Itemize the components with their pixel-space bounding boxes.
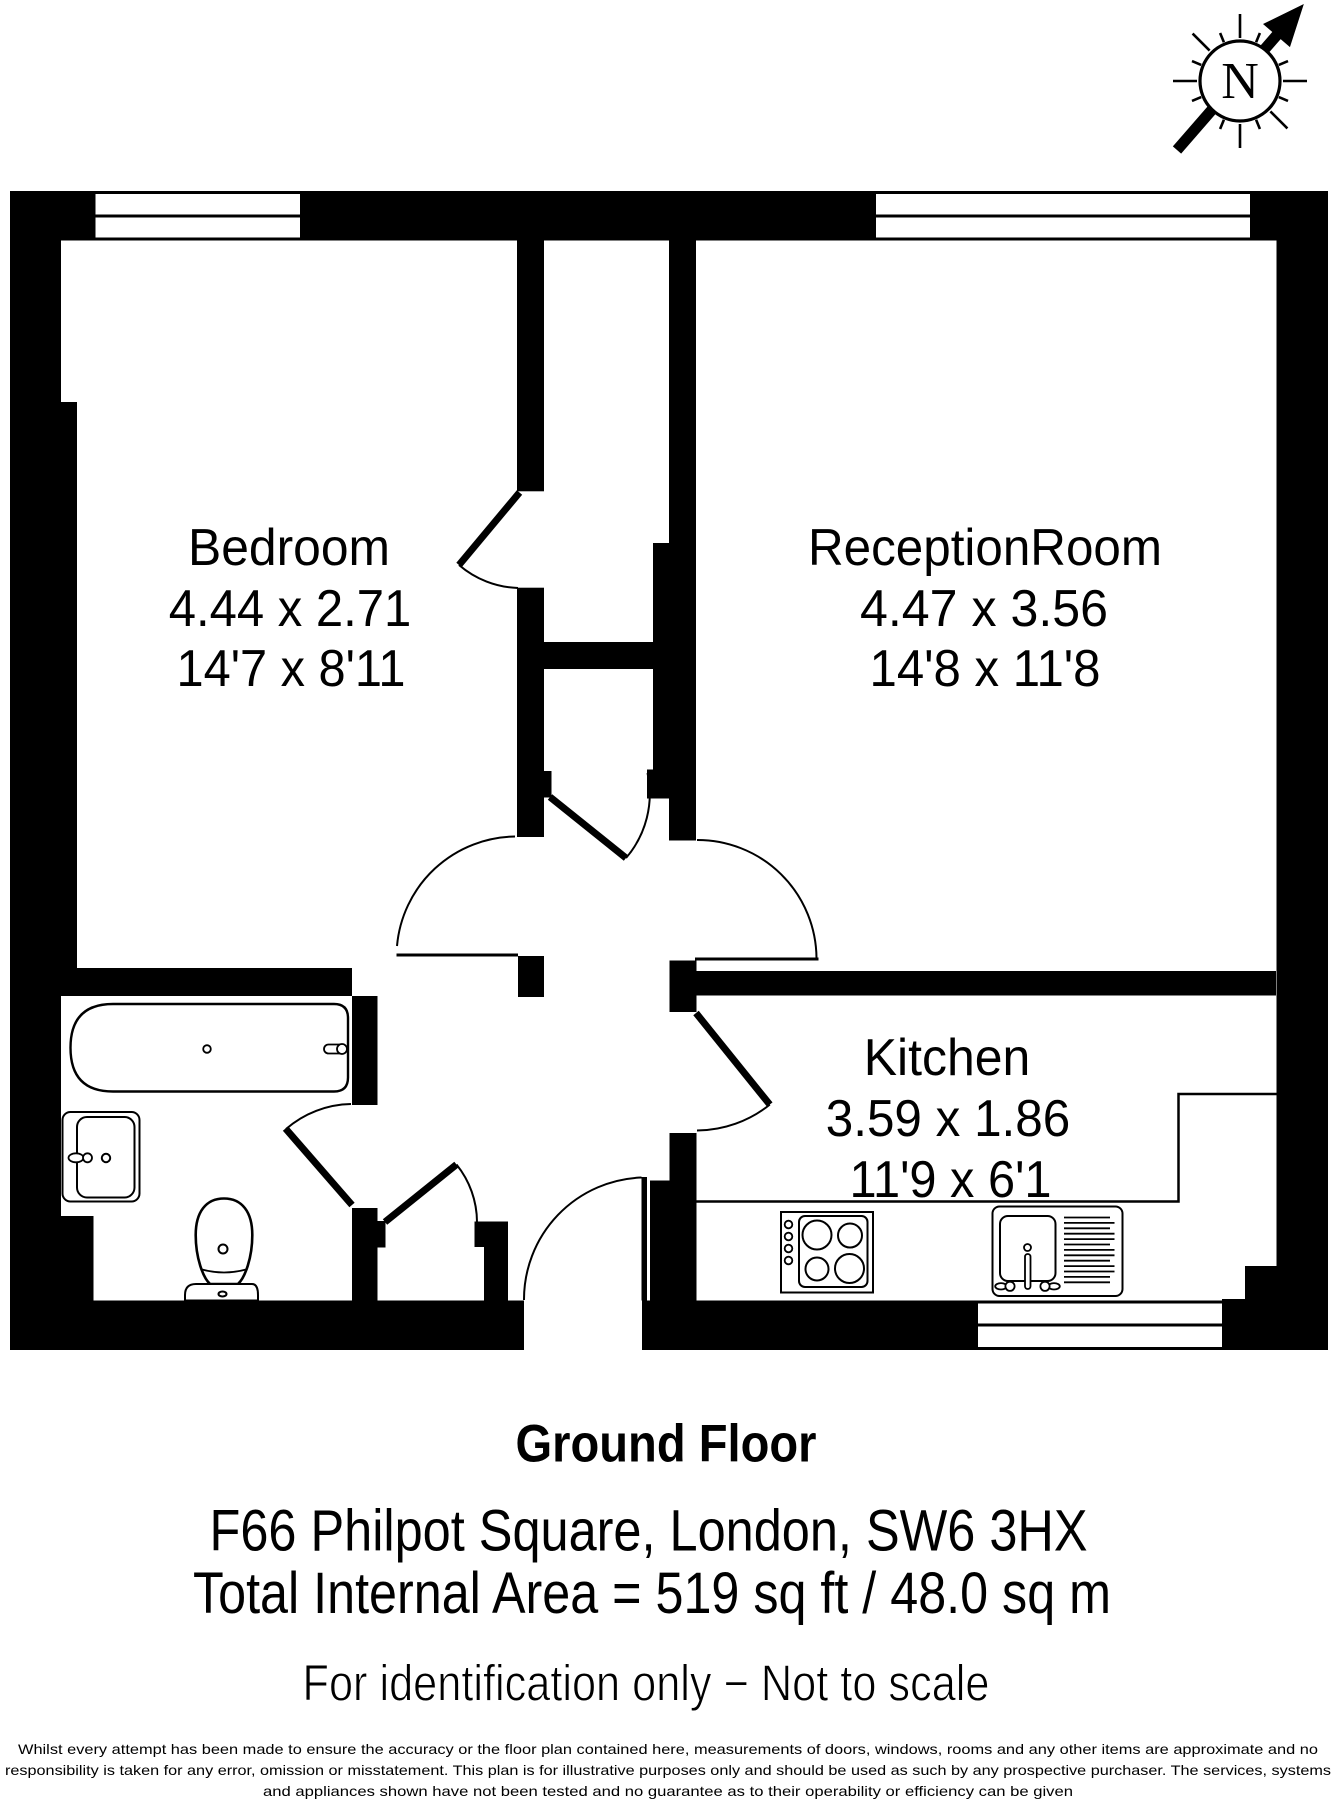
svg-text:11'9 x 6'1: 11'9 x 6'1 — [850, 1150, 1052, 1208]
svg-text:14'7 x 8'11: 14'7 x 8'11 — [177, 639, 406, 697]
svg-text:3.59 x 1.86: 3.59 x 1.86 — [826, 1089, 1071, 1147]
svg-text:Whilst every attempt has been: Whilst every attempt has been made to en… — [18, 1741, 1318, 1757]
svg-text:Ground Floor: Ground Floor — [516, 1415, 817, 1474]
svg-text:4.44 x 2.71: 4.44 x 2.71 — [169, 579, 412, 637]
svg-text:4.47 x 3.56: 4.47 x 3.56 — [860, 579, 1108, 637]
svg-text:N: N — [1221, 53, 1259, 110]
svg-text:For identification only − Not: For identification only − Not to scale — [303, 1655, 990, 1712]
svg-text:ReceptionRoom: ReceptionRoom — [808, 518, 1162, 576]
svg-text:14'8 x 11'8: 14'8 x 11'8 — [870, 639, 1101, 697]
svg-text:Bedroom: Bedroom — [188, 518, 390, 576]
svg-text:responsibility is taken for an: responsibility is taken for any error, o… — [5, 1762, 1331, 1778]
svg-text:Total Internal Area = 519 sq f: Total Internal Area = 519 sq ft / 48.0 s… — [193, 1561, 1111, 1626]
svg-text:Kitchen: Kitchen — [864, 1028, 1031, 1086]
svg-text:and appliances shown have not: and appliances shown have not been teste… — [263, 1783, 1073, 1799]
svg-text:F66 Philpot Square, London, SW: F66 Philpot Square, London, SW6 3HX — [210, 1499, 1088, 1564]
